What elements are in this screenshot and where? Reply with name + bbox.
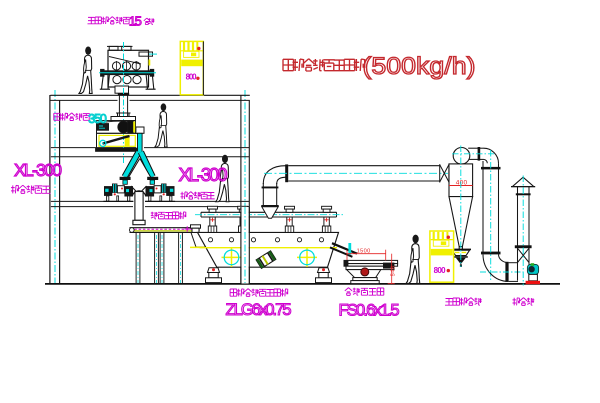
svg-text:ZLG6x0.75: ZLG6x0.75 <box>226 301 292 319</box>
svg-text:400: 400 <box>456 179 468 186</box>
svg-text:XL-300: XL-300 <box>14 160 62 180</box>
svg-text:XL-300: XL-300 <box>179 164 228 185</box>
svg-text:(500kg/h): (500kg/h) <box>363 53 476 80</box>
svg-text:548: 548 <box>391 266 397 276</box>
svg-text:FS0.6x1.5: FS0.6x1.5 <box>339 301 400 319</box>
svg-text:800: 800 <box>434 266 447 275</box>
svg-text:800: 800 <box>186 72 198 81</box>
svg-text:1.5: 1.5 <box>129 14 142 29</box>
svg-text:350: 350 <box>88 112 107 126</box>
svg-text:1500: 1500 <box>357 249 371 255</box>
